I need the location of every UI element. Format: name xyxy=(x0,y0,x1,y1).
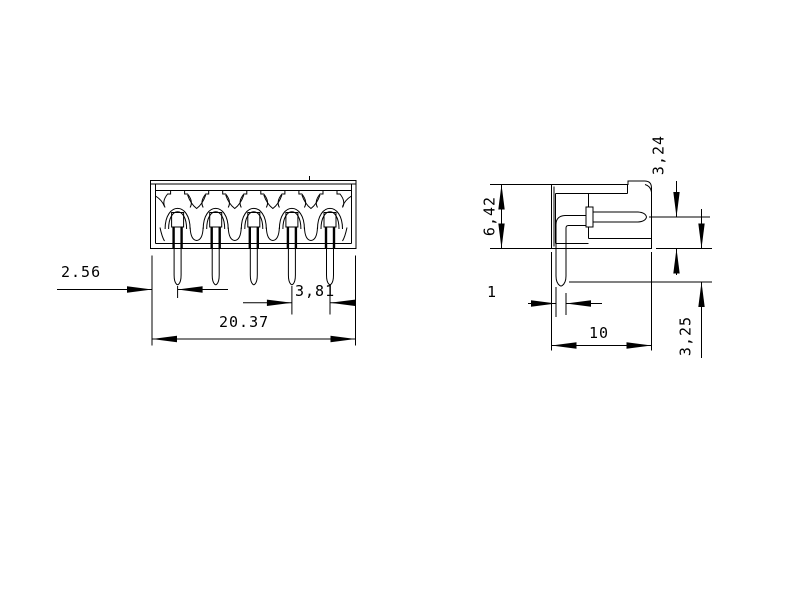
dim-label-pin-pitch: 3,81 xyxy=(295,284,335,299)
dim-label-edge-to-first-pin: 2.56 xyxy=(61,265,101,280)
pin-cavity-5 xyxy=(316,191,344,285)
connector-drawing-svg xyxy=(0,0,800,600)
drawing-canvas: 2.56 3,81 20.37 6,42 3,24 3,25 1 10 xyxy=(0,0,800,600)
pin-cavity-2 xyxy=(202,191,244,285)
dim-label-body-height: 6,42 xyxy=(483,196,498,236)
pin-cavity-4 xyxy=(278,191,320,285)
dim-label-body-depth: 10 xyxy=(589,326,609,341)
front-dimensions xyxy=(57,256,356,346)
dim-label-overall-width: 20.37 xyxy=(219,315,269,330)
dim-label-pin-tail-below-body: 3,25 xyxy=(679,316,694,356)
dim-label-pin-center-to-body-bottom: 3,24 xyxy=(652,135,667,175)
side-view xyxy=(552,181,652,286)
pin-cavity-1 xyxy=(164,191,206,285)
pin-cavity-3 xyxy=(240,191,282,285)
dim-label-pin-thickness: 1 xyxy=(487,285,497,300)
